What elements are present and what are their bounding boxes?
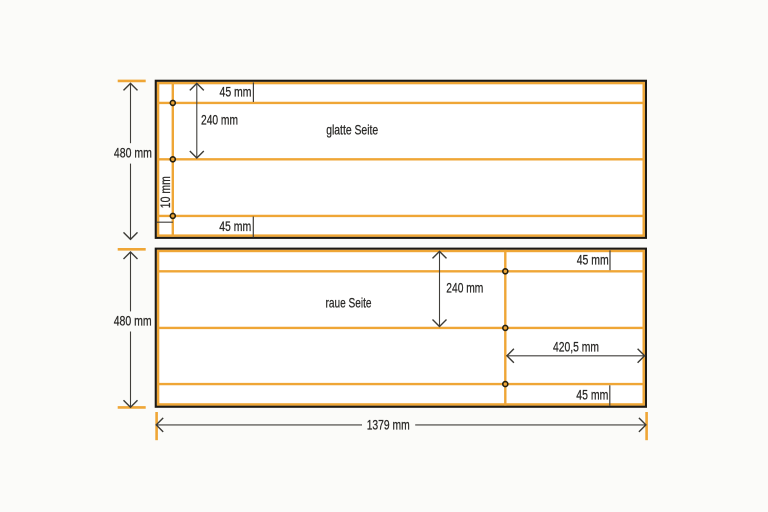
svg-text:45 mm: 45 mm <box>577 253 609 268</box>
svg-text:raue Seite: raue Seite <box>326 296 372 311</box>
svg-text:45 mm: 45 mm <box>220 85 252 100</box>
svg-text:45 mm: 45 mm <box>576 388 608 403</box>
svg-text:420,5 mm: 420,5 mm <box>553 340 599 355</box>
svg-text:240 mm: 240 mm <box>201 113 238 128</box>
svg-text:10 mm: 10 mm <box>158 176 173 208</box>
svg-text:glatte Seite: glatte Seite <box>326 122 378 137</box>
svg-text:1379 mm: 1379 mm <box>367 418 410 433</box>
svg-text:45 mm: 45 mm <box>219 219 251 234</box>
svg-text:480 mm: 480 mm <box>114 146 152 161</box>
svg-text:240 mm: 240 mm <box>446 280 483 295</box>
svg-text:480 mm: 480 mm <box>114 313 152 328</box>
